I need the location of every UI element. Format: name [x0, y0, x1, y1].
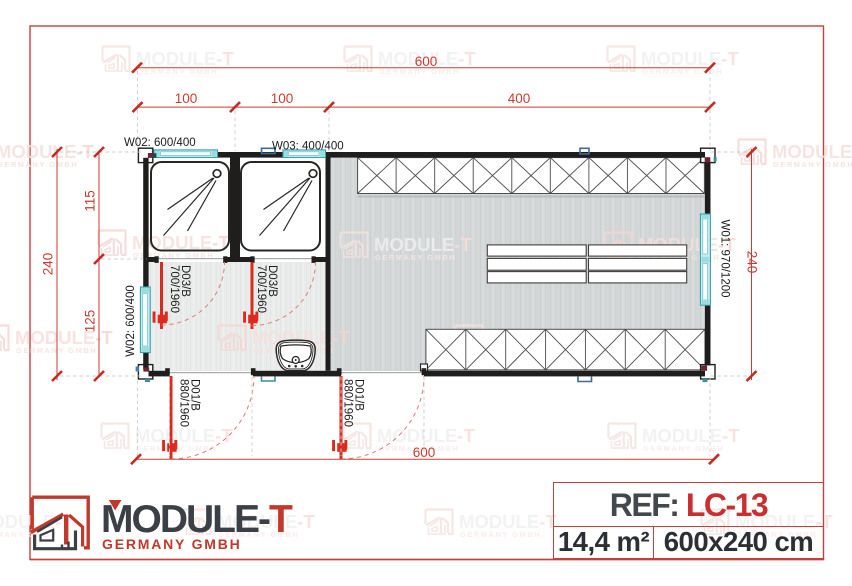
svg-text:GERMANY GMBH: GERMANY GMBH	[102, 536, 242, 552]
svg-text:MODULE-T: MODULE-T	[101, 498, 293, 541]
